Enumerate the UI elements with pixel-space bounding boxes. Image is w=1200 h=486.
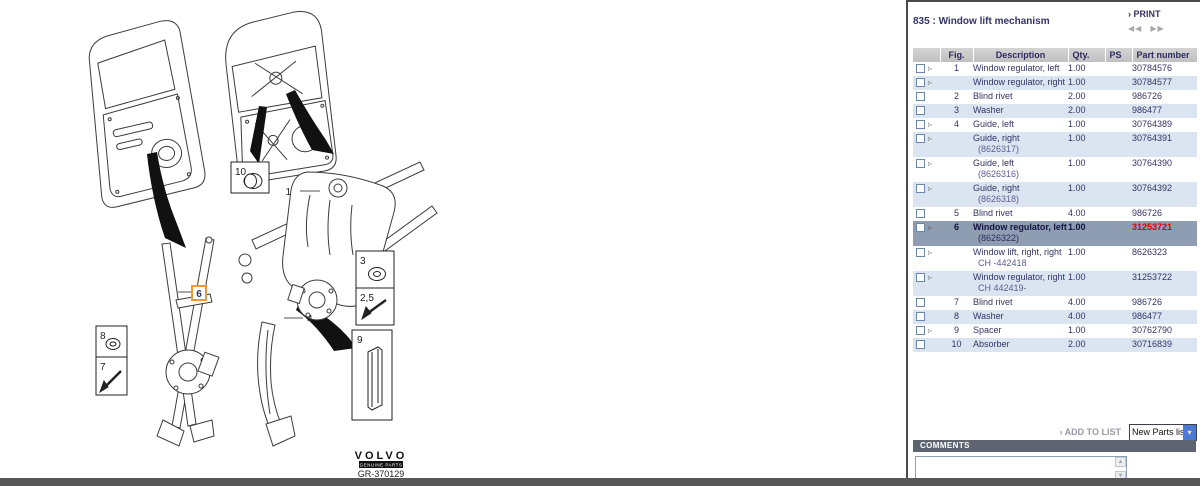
parts-list-select[interactable]: New Parts list ▾ — [1129, 424, 1197, 441]
callout-label-7: 7 — [100, 362, 106, 373]
rear-door-drawing — [84, 18, 207, 208]
row-description-main: Washer — [973, 311, 1068, 322]
callout-label-1[interactable]: 1 — [285, 187, 291, 198]
row-select-cell: ▹ — [913, 62, 940, 76]
row-description: Window regulator, left(8626322) — [973, 221, 1068, 246]
row-fig: 4 — [940, 118, 973, 132]
row-description-main: Guide, left — [973, 158, 1068, 169]
col-header-checkbox — [913, 48, 940, 62]
row-checkbox[interactable] — [916, 134, 925, 143]
row-fig — [940, 246, 973, 271]
row-part-number: 986477 — [1132, 104, 1197, 118]
parts-list-selected-value: New Parts list — [1130, 427, 1183, 437]
row-description-main: Window regulator, left — [973, 63, 1068, 74]
parts-table: Fig. Description Qty. PS Part number ▹ 1… — [913, 48, 1198, 352]
col-header-ps: PS — [1105, 48, 1132, 62]
row-part-number: 30784576 — [1132, 62, 1197, 76]
callout-label-10: 10 — [235, 167, 247, 178]
row-select-cell: ▹ — [913, 104, 940, 118]
row-checkbox[interactable] — [916, 340, 925, 349]
parts-table-body: ▹ 1 Window regulator, left 1.00 30784576… — [913, 62, 1197, 352]
row-expand-arrow-icon[interactable]: ▹ — [928, 272, 932, 283]
row-checkbox[interactable] — [916, 92, 925, 101]
row-expand-arrow-icon[interactable]: ▹ — [928, 63, 932, 74]
row-qty: 1.00 — [1068, 157, 1105, 182]
row-description-main: Window regulator, right — [973, 272, 1068, 283]
bottom-border-bar — [0, 478, 1200, 486]
row-qty: 1.00 — [1068, 76, 1105, 90]
add-chevron-icon: › — [1059, 427, 1062, 437]
row-qty: 4.00 — [1068, 207, 1105, 221]
row-description: Washer — [973, 310, 1068, 324]
row-part-number: 986477 — [1132, 310, 1197, 324]
callout-label-2-5: 2,5 — [360, 293, 374, 304]
row-part-number: 30764390 — [1132, 157, 1197, 182]
add-to-list-label: ADD TO LIST — [1065, 427, 1121, 437]
row-qty: 1.00 — [1068, 132, 1105, 157]
row-fig — [940, 157, 973, 182]
row-ps — [1105, 324, 1132, 338]
row-select-cell: ▹ — [913, 310, 940, 324]
row-ps — [1105, 90, 1132, 104]
callout-label-3: 3 — [360, 256, 366, 267]
row-part-number: 986726 — [1132, 207, 1197, 221]
row-part-number: 30764392 — [1132, 182, 1197, 207]
row-select-cell: ▹ — [913, 207, 940, 221]
row-ps — [1105, 296, 1132, 310]
row-ps — [1105, 118, 1132, 132]
parts-catalog-page: 1 4 6 — [0, 0, 1200, 486]
print-label: PRINT — [1134, 9, 1161, 19]
row-description-sub: (8626317) — [973, 144, 1068, 155]
row-checkbox[interactable] — [916, 159, 925, 168]
row-fig — [940, 271, 973, 296]
row-part-number: 30716839 — [1132, 338, 1197, 352]
parts-table-row[interactable]: ▹ 3 Washer 2.00 986477 — [913, 104, 1197, 118]
pager-next-icon[interactable]: ▶▶ — [1150, 24, 1164, 33]
parts-table-row[interactable]: ▹ 5 Blind rivet 4.00 986726 — [913, 207, 1197, 221]
row-qty: 4.00 — [1068, 310, 1105, 324]
row-description: Spacer — [973, 324, 1068, 338]
row-description-main: Blind rivet — [973, 91, 1068, 102]
volvo-logo-subtext: GENUINE PARTS — [360, 463, 403, 468]
row-checkbox[interactable] — [916, 273, 925, 282]
callout-label-8: 8 — [100, 331, 106, 342]
row-expand-arrow-icon[interactable]: ▹ — [928, 222, 932, 233]
print-chevron-icon: › — [1128, 9, 1131, 19]
row-qty: 2.00 — [1068, 90, 1105, 104]
row-ps — [1105, 182, 1132, 207]
callout-label-9: 9 — [357, 335, 363, 346]
row-description-main: Absorber — [973, 339, 1068, 350]
row-description: Window regulator, left — [973, 62, 1068, 76]
row-qty: 1.00 — [1068, 118, 1105, 132]
row-part-number: 30764389 — [1132, 118, 1197, 132]
row-expand-arrow-icon[interactable]: ▹ — [928, 158, 932, 169]
row-select-cell: ▹ — [913, 296, 940, 310]
row-description: Blind rivet — [973, 207, 1068, 221]
row-part-number: 30764391 — [1132, 132, 1197, 157]
row-expand-arrow-icon[interactable]: ▹ — [928, 119, 932, 130]
row-description: Blind rivet — [973, 90, 1068, 104]
row-ps — [1105, 338, 1132, 352]
row-fig: 8 — [940, 310, 973, 324]
row-checkbox[interactable] — [916, 298, 925, 307]
row-description: Window regulator, rightCH 442419- — [973, 271, 1068, 296]
row-fig — [940, 132, 973, 157]
parts-table-row[interactable]: ▹ 10 Absorber 2.00 30716839 — [913, 338, 1197, 352]
row-expand-arrow-icon[interactable]: ▹ — [928, 247, 932, 258]
row-checkbox[interactable] — [916, 248, 925, 257]
row-description-sub: CH -442418 — [973, 258, 1068, 269]
row-fig: 1 — [940, 62, 973, 76]
row-expand-arrow-icon[interactable]: ▹ — [928, 77, 932, 88]
parts-table-row[interactable]: ▹ 8 Washer 4.00 986477 — [913, 310, 1197, 324]
col-header-description: Description — [973, 48, 1068, 62]
parts-table-row[interactable]: ▹ 9 Spacer 1.00 30762790 — [913, 324, 1197, 338]
row-select-cell: ▹ — [913, 324, 940, 338]
row-ps — [1105, 157, 1132, 182]
col-header-qty: Qty. — [1068, 48, 1105, 62]
row-description-main: Spacer — [973, 325, 1068, 336]
row-qty: 1.00 — [1068, 182, 1105, 207]
row-fig: 3 — [940, 104, 973, 118]
parts-table-row[interactable]: ▹ Window regulator, rightCH 442419- 1.00… — [913, 271, 1197, 296]
row-checkbox[interactable] — [916, 326, 925, 335]
parts-table-row[interactable]: ▹ 2 Blind rivet 2.00 986726 — [913, 90, 1197, 104]
row-ps — [1105, 104, 1132, 118]
row-ps — [1105, 62, 1132, 76]
row-description-main: Washer — [973, 105, 1068, 116]
row-ps — [1105, 246, 1132, 271]
row-checkbox[interactable] — [916, 223, 925, 232]
row-select-cell: ▹ — [913, 157, 940, 182]
window-lift-diagram: 1 4 6 — [0, 0, 906, 480]
row-qty: 2.00 — [1068, 338, 1105, 352]
row-description: Guide, left(8626316) — [973, 157, 1068, 182]
row-qty: 4.00 — [1068, 296, 1105, 310]
row-ps — [1105, 207, 1132, 221]
parts-table-row[interactable]: ▹ 4 Guide, left 1.00 30764389 — [913, 118, 1197, 132]
callout-label-4[interactable]: 4 — [307, 314, 313, 325]
row-select-cell: ▹ — [913, 271, 940, 296]
row-description-sub: (8626316) — [973, 169, 1068, 180]
volvo-logo: VOLVO GENUINE PARTS GR-370129 — [355, 450, 408, 479]
row-ps — [1105, 271, 1132, 296]
row-description: Guide, left — [973, 118, 1068, 132]
row-description-main: Window regulator, right — [973, 77, 1068, 88]
row-select-cell: ▹ — [913, 182, 940, 207]
row-fig: 2 — [940, 90, 973, 104]
row-description: Window regulator, right — [973, 76, 1068, 90]
row-fig — [940, 76, 973, 90]
comments-header: COMMENTS — [913, 440, 1196, 452]
row-ps — [1105, 132, 1132, 157]
row-description: Absorber — [973, 338, 1068, 352]
row-description: Guide, right(8626317) — [973, 132, 1068, 157]
row-part-number: 30784577 — [1132, 76, 1197, 90]
row-description-main: Guide, right — [973, 133, 1068, 144]
row-fig — [940, 182, 973, 207]
row-expand-arrow-icon[interactable]: ▹ — [928, 183, 932, 194]
row-description: Blind rivet — [973, 296, 1068, 310]
row-description-sub: (8626318) — [973, 194, 1068, 205]
row-description-sub: CH 442419- — [973, 283, 1068, 294]
row-ps — [1105, 76, 1132, 90]
pager-prev-icon[interactable]: ◀◀ — [1128, 24, 1142, 33]
row-part-number: 30762790 — [1132, 324, 1197, 338]
row-ps — [1105, 310, 1132, 324]
row-select-cell: ▹ — [913, 338, 940, 352]
left-regulator-drawing — [157, 237, 219, 446]
parts-list-panel: 835 : Window lift mechanism › PRINT ◀◀▶▶… — [908, 0, 1200, 478]
row-checkbox[interactable] — [916, 64, 925, 73]
callout-6-highlighted[interactable]: 6 — [192, 286, 206, 300]
row-qty: 1.00 — [1068, 246, 1105, 271]
row-part-number: 986726 — [1132, 90, 1197, 104]
row-checkbox[interactable] — [916, 120, 925, 129]
parts-table-row[interactable]: ▹ 6 Window regulator, left(8626322) 1.00… — [913, 221, 1197, 246]
callout-label-6: 6 — [196, 289, 202, 300]
row-description: Washer — [973, 104, 1068, 118]
add-to-list-link[interactable]: › ADD TO LIST — [1059, 427, 1121, 437]
select-dropdown-icon[interactable]: ▾ — [1183, 425, 1196, 440]
parts-table-row[interactable]: ▹ 7 Blind rivet 4.00 986726 — [913, 296, 1197, 310]
row-ps — [1105, 221, 1132, 246]
row-fig: 6 — [940, 221, 973, 246]
row-qty: 1.00 — [1068, 221, 1105, 246]
row-checkbox[interactable] — [916, 184, 925, 193]
parts-table-row[interactable]: ▹ Guide, left(8626316) 1.00 30764390 — [913, 157, 1197, 182]
row-description-main: Blind rivet — [973, 208, 1068, 219]
row-description-main: Guide, left — [973, 119, 1068, 130]
row-part-number: 31253722 — [1132, 271, 1197, 296]
row-checkbox[interactable] — [916, 106, 925, 115]
scroll-up-icon[interactable]: ▲ — [1115, 457, 1126, 467]
col-header-part-number: Part number — [1132, 48, 1197, 62]
row-fig: 5 — [940, 207, 973, 221]
table-header-row: Fig. Description Qty. PS Part number — [913, 48, 1197, 62]
parts-table-row[interactable]: ▹ Guide, right(8626318) 1.00 30764392 — [913, 182, 1197, 207]
row-description-main: Window lift, right, right — [973, 247, 1068, 258]
row-select-cell: ▹ — [913, 132, 940, 157]
parts-table-row[interactable]: ▹ Window regulator, right 1.00 30784577 — [913, 76, 1197, 90]
print-link[interactable]: › PRINT — [1128, 9, 1161, 19]
row-description-sub: (8626322) — [973, 233, 1068, 244]
row-select-cell: ▹ — [913, 90, 940, 104]
guide-rail-drawing — [258, 322, 295, 446]
row-fig: 10 — [940, 338, 973, 352]
row-description-main: Window regulator, left — [973, 222, 1068, 233]
parts-table-row[interactable]: ▹ Guide, right(8626317) 1.00 30764391 — [913, 132, 1197, 157]
parts-table-row[interactable]: ▹ 1 Window regulator, left 1.00 30784576 — [913, 62, 1197, 76]
row-checkbox[interactable] — [916, 209, 925, 218]
row-select-cell: ▹ — [913, 221, 940, 246]
parts-table-row[interactable]: ▹ Window lift, right, rightCH -442418 1.… — [913, 246, 1197, 271]
row-fig: 9 — [940, 324, 973, 338]
row-checkbox[interactable] — [916, 312, 925, 321]
row-qty: 1.00 — [1068, 271, 1105, 296]
row-select-cell: ▹ — [913, 76, 940, 90]
row-part-number: 31253721 — [1132, 221, 1197, 246]
pager: ◀◀▶▶ — [1128, 24, 1173, 33]
row-expand-arrow-icon[interactable]: ▹ — [928, 325, 932, 336]
row-description: Guide, right(8626318) — [973, 182, 1068, 207]
row-qty: 2.00 — [1068, 104, 1105, 118]
volvo-logo-text: VOLVO — [355, 450, 408, 462]
row-fig: 7 — [940, 296, 973, 310]
row-part-number: 8626323 — [1132, 246, 1197, 271]
row-expand-arrow-icon[interactable]: ▹ — [928, 133, 932, 144]
row-description: Window lift, right, rightCH -442418 — [973, 246, 1068, 271]
row-select-cell: ▹ — [913, 246, 940, 271]
row-qty: 1.00 — [1068, 62, 1105, 76]
row-description-main: Blind rivet — [973, 297, 1068, 308]
row-checkbox[interactable] — [916, 78, 925, 87]
row-part-number: 986726 — [1132, 296, 1197, 310]
row-qty: 1.00 — [1068, 324, 1105, 338]
page-title: 835 : Window lift mechanism — [913, 16, 1050, 27]
row-description-main: Guide, right — [973, 183, 1068, 194]
diagram-panel: 1 4 6 — [0, 0, 906, 480]
front-door-drawing — [223, 10, 337, 184]
row-select-cell: ▹ — [913, 118, 940, 132]
col-header-fig: Fig. — [940, 48, 973, 62]
